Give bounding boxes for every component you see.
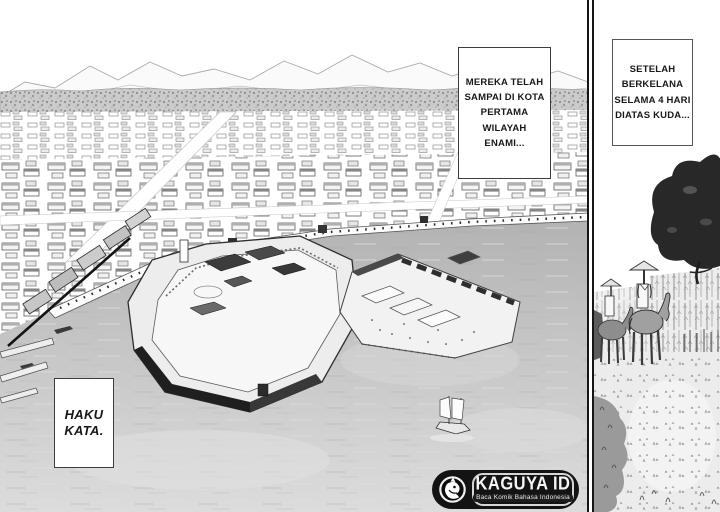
watermark-tagline: Baca Komik Bahasa Indonesia — [473, 494, 573, 502]
caption-box-journey: SETELAH BERKELANA SELAMA 4 HARI DIATAS K… — [612, 39, 693, 146]
manga-page: MEREKA TELAH SAMPAI DI KOTA PERTAMA WILA… — [0, 0, 720, 512]
castle-white-tower — [180, 240, 188, 262]
watermark-brand: KAGUYA ID — [476, 475, 571, 493]
caption-box-arrival: MEREKA TELAH SAMPAI DI KOTA PERTAMA WILA… — [458, 47, 551, 179]
castle-gate — [258, 384, 268, 396]
kaguya-rabbit-icon — [437, 474, 468, 505]
kaguya-badge-body: KAGUYA ID Baca Komik Bahasa Indonesia — [472, 473, 574, 505]
caption-box-haku-kata: HAKU KATA. — [54, 378, 114, 468]
main-panel-border — [587, 0, 589, 512]
water-highlight — [450, 408, 588, 452]
kaguya-watermark-badge: KAGUYA ID Baca Komik Bahasa Indonesia — [432, 470, 579, 509]
